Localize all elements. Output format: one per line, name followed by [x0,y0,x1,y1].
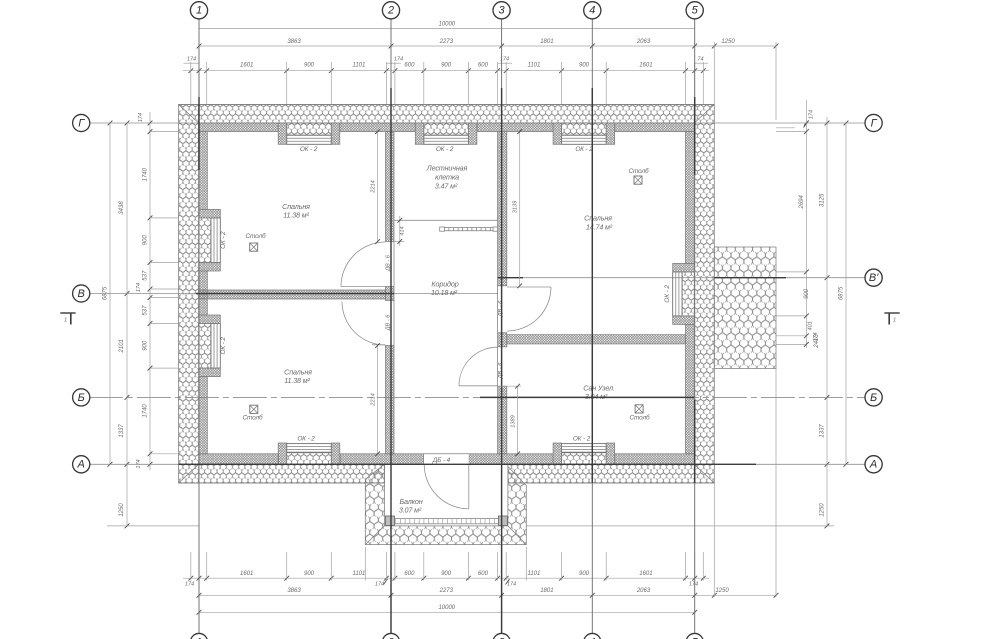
svg-text:2694: 2694 [799,194,805,209]
svg-text:2: 2 [387,5,394,17]
svg-text:ОК - 2: ОК - 2 [436,146,454,153]
svg-text:900: 900 [579,62,590,68]
svg-text:1601: 1601 [240,571,253,577]
svg-text:1801: 1801 [540,39,553,45]
svg-text:174: 174 [375,582,384,588]
svg-text:1250: 1250 [715,588,729,594]
svg-text:174: 174 [394,57,403,63]
svg-text:Столб: Столб [243,413,263,421]
svg-text:74: 74 [697,57,703,63]
svg-text:Г: Г [78,117,85,129]
svg-text:Столб: Столб [246,232,266,240]
svg-text:ОК - 2: ОК - 2 [575,146,593,153]
svg-text:В': В' [869,272,879,284]
svg-text:1601: 1601 [240,62,253,68]
svg-text:2063: 2063 [636,588,651,594]
svg-text:3125: 3125 [819,193,825,207]
svg-text:ОК - 2: ОК - 2 [297,436,315,443]
svg-text:6875: 6875 [838,286,844,300]
svg-text:3863: 3863 [287,588,301,594]
svg-text:174: 174 [138,113,144,122]
svg-text:4: 4 [589,5,595,17]
svg-text:2214: 2214 [370,180,376,193]
svg-text:1601: 1601 [639,571,652,577]
svg-text:Столб: Столб [630,413,650,421]
svg-text:11.38 м²: 11.38 м² [284,376,310,385]
svg-text:Г: Г [871,117,878,129]
svg-text:Столб: Столб [629,167,649,175]
svg-text:3.47 м²: 3.47 м² [435,181,458,190]
svg-text:2063: 2063 [636,39,651,45]
svg-text:ОК - 2: ОК - 2 [300,146,318,153]
svg-text:1601: 1601 [639,62,652,68]
svg-text:3438: 3438 [119,201,125,215]
svg-text:2101: 2101 [119,339,125,353]
svg-text:174: 174 [185,582,194,588]
svg-text:1101: 1101 [527,571,540,577]
svg-text:1: 1 [893,318,896,324]
svg-text:1740: 1740 [142,404,148,418]
svg-text:3863: 3863 [287,39,301,45]
svg-text:А: А [869,459,877,471]
svg-text:Б: Б [78,392,85,404]
svg-text:1250: 1250 [119,503,125,517]
svg-text:ОК - 2: ОК - 2 [220,231,227,249]
svg-text:1801: 1801 [540,588,553,594]
svg-text:ДБ - 4: ДБ - 4 [432,457,451,464]
svg-text:3.07 м²: 3.07 м² [399,506,422,515]
svg-text:Спальня: Спальня [584,214,612,223]
svg-text:900: 900 [304,62,315,68]
svg-text:3.04 м²: 3.04 м² [585,392,608,401]
svg-text:1337: 1337 [819,424,825,438]
svg-text:174: 174 [507,582,516,588]
svg-text:11.38 м²: 11.38 м² [283,211,309,220]
svg-text:2273: 2273 [439,39,454,45]
svg-text:10000: 10000 [438,605,455,611]
svg-text:1: 1 [64,318,67,324]
svg-text:600: 600 [478,571,489,577]
svg-text:600: 600 [404,571,415,577]
svg-text:1740: 1740 [142,167,148,181]
svg-text:10000: 10000 [438,22,455,28]
svg-text:537: 537 [142,305,148,316]
svg-text:1389: 1389 [510,415,516,427]
svg-text:3: 3 [499,5,506,17]
svg-text:900: 900 [804,288,810,299]
svg-text:ОК - 2: ОК - 2 [573,436,591,443]
svg-text:900: 900 [579,571,590,577]
svg-text:2214: 2214 [370,393,376,406]
svg-text:900: 900 [441,571,452,577]
svg-text:А: А [77,459,85,471]
svg-text:537: 537 [142,270,148,281]
svg-text:600: 600 [478,62,489,68]
svg-text:900: 900 [142,235,148,246]
svg-text:5: 5 [692,5,699,17]
svg-text:900: 900 [304,571,315,577]
svg-text:174: 174 [689,582,698,588]
svg-text:14.74 м²: 14.74 м² [586,222,613,231]
svg-text:1101: 1101 [352,571,365,577]
svg-text:ОК - 2: ОК - 2 [664,285,671,303]
svg-text:2273: 2273 [439,588,454,594]
svg-text:1101: 1101 [352,62,365,68]
svg-text:600: 600 [404,62,415,68]
svg-text:Лестничная: Лестничная [426,164,468,173]
svg-text:В: В [78,288,85,300]
svg-text:ОК - 2: ОК - 2 [220,337,227,355]
svg-text:1: 1 [196,5,202,17]
svg-text:1337: 1337 [119,424,125,438]
svg-text:3139: 3139 [512,201,518,213]
svg-text:174: 174 [136,283,142,292]
svg-text:174: 174 [187,57,196,63]
svg-text:1101: 1101 [527,62,540,68]
svg-text:900: 900 [142,340,148,351]
svg-text:1250: 1250 [819,503,825,517]
svg-text:401: 401 [808,321,814,330]
svg-text:414: 414 [399,226,405,235]
svg-text:10.18 м²: 10.18 м² [431,288,458,297]
svg-text:1250: 1250 [721,39,735,45]
svg-text:900: 900 [441,62,452,68]
svg-text:174: 174 [809,110,815,119]
svg-text:Б: Б [870,392,877,404]
svg-text:клетка: клетка [435,172,459,181]
svg-text:2413: 2413 [814,334,820,349]
